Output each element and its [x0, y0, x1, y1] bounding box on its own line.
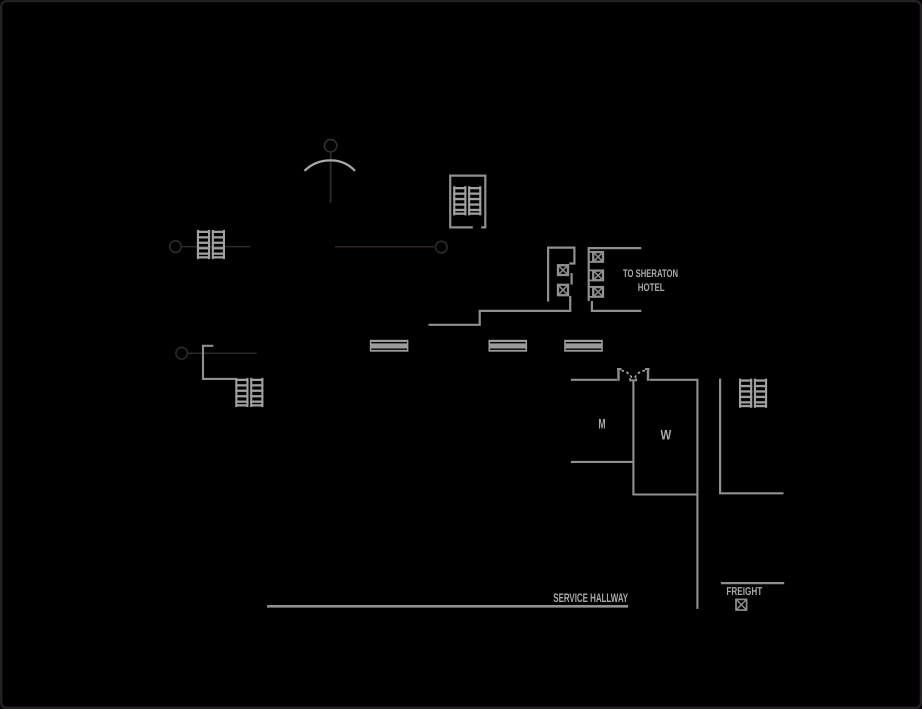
svg-text:FREIGHT: FREIGHT	[726, 586, 762, 598]
svg-text:HOTEL: HOTEL	[638, 282, 665, 294]
svg-text:W: W	[661, 426, 672, 442]
svg-text:M: M	[598, 416, 605, 432]
svg-text:SERVICE HALLWAY: SERVICE HALLWAY	[553, 591, 628, 605]
svg-text:TO SHERATON: TO SHERATON	[623, 268, 678, 280]
